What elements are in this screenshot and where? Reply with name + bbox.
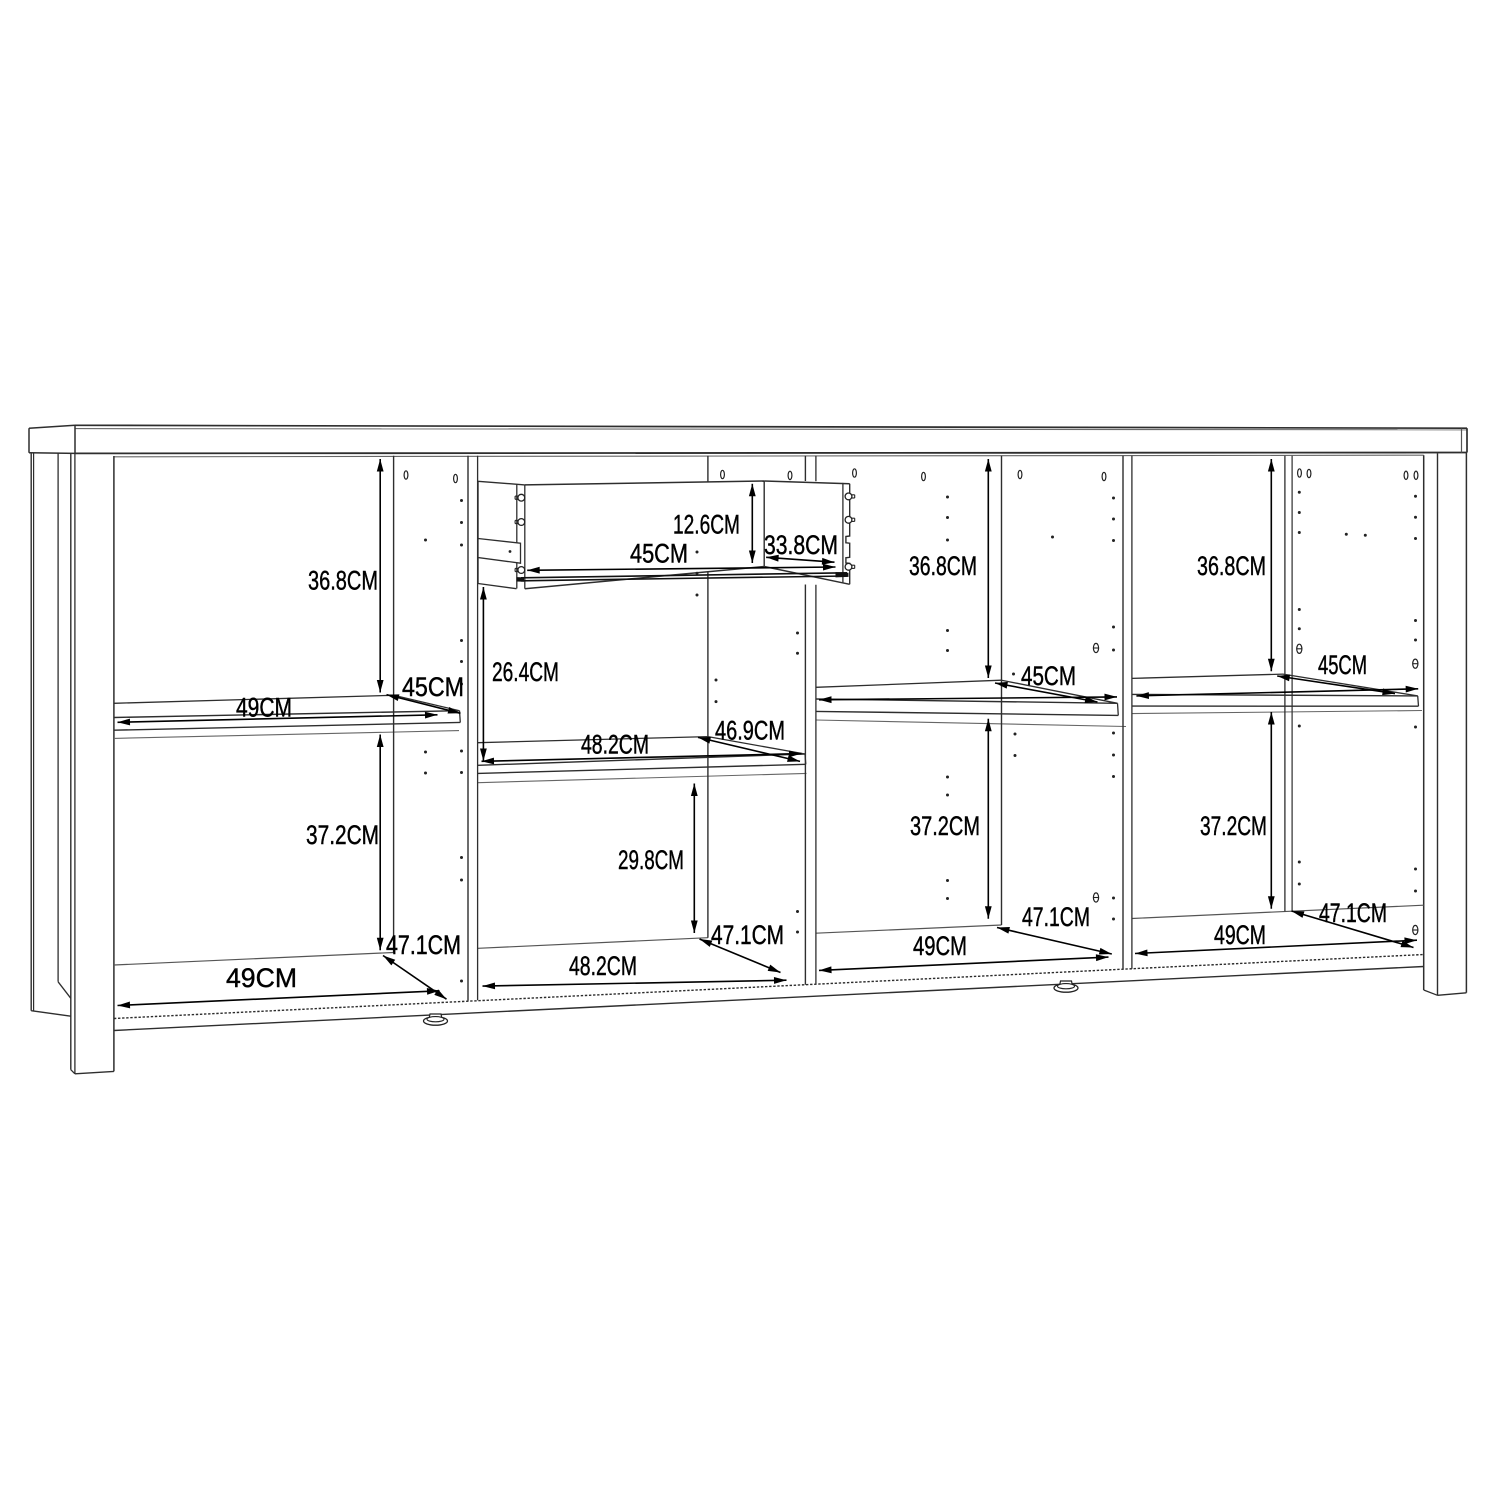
svg-text:48.2CM: 48.2CM [569,951,637,981]
svg-text:37.2CM: 37.2CM [910,811,980,841]
svg-text:33.8CM: 33.8CM [764,530,838,560]
svg-text:37.2CM: 37.2CM [306,820,379,850]
svg-text:26.4CM: 26.4CM [492,657,559,687]
svg-text:49CM: 49CM [1214,920,1266,950]
svg-text:46.9CM: 46.9CM [715,716,785,746]
svg-text:36.8CM: 36.8CM [308,566,378,596]
svg-text:49CM: 49CM [913,931,967,961]
svg-text:45CM: 45CM [402,672,464,702]
svg-text:29.8CM: 29.8CM [618,845,684,875]
svg-text:49CM: 49CM [226,963,297,993]
svg-text:36.8CM: 36.8CM [1197,551,1266,581]
svg-text:45CM: 45CM [1318,650,1367,680]
svg-text:36.8CM: 36.8CM [909,551,977,581]
svg-text:12.6CM: 12.6CM [673,510,740,540]
svg-text:47.1CM: 47.1CM [1022,902,1090,932]
svg-text:48.2CM: 48.2CM [581,730,649,760]
svg-text:45CM: 45CM [1021,661,1076,691]
svg-text:45CM: 45CM [630,539,688,569]
svg-text:49CM: 49CM [236,693,292,723]
svg-text:37.2CM: 37.2CM [1200,811,1267,841]
svg-text:47.1CM: 47.1CM [386,930,461,960]
svg-text:47.1CM: 47.1CM [711,920,784,950]
svg-text:47.1CM: 47.1CM [1319,898,1387,928]
